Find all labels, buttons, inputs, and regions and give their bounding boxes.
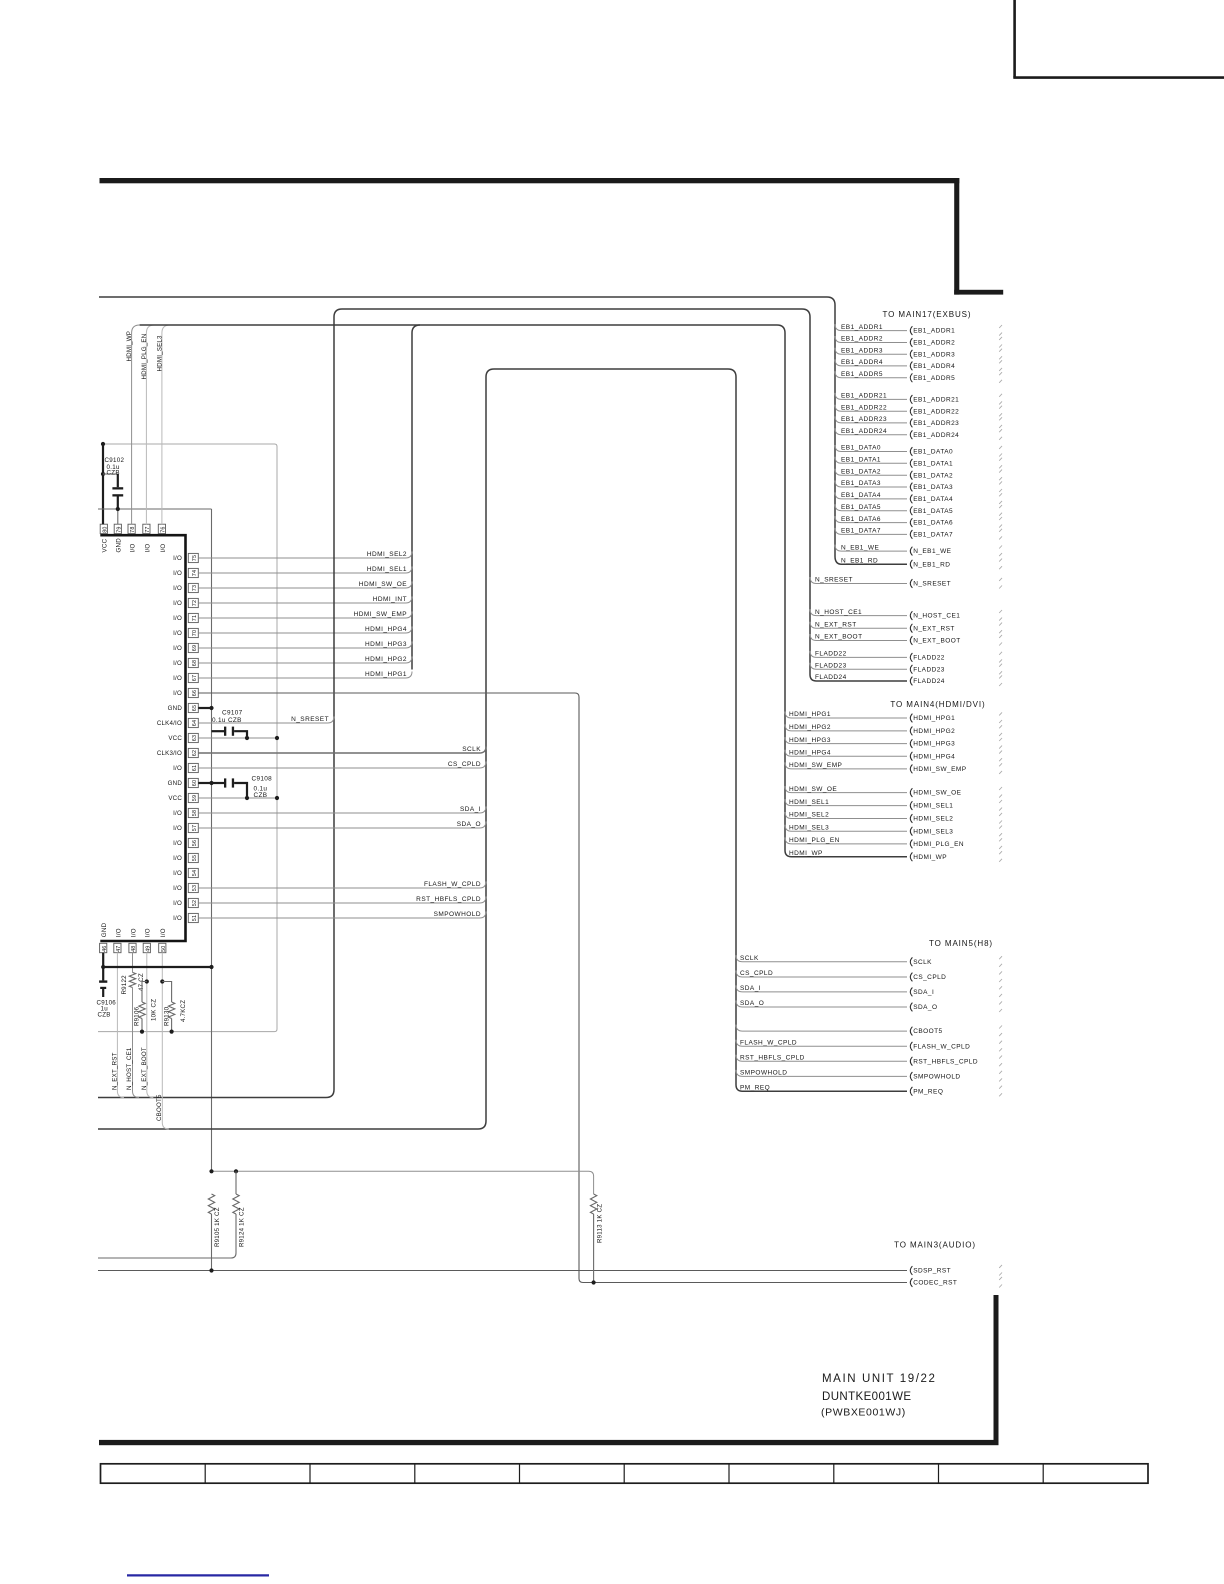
svg-text:65: 65 [192, 705, 198, 711]
svg-text:N_HOST_CE1: N_HOST_CE1 [913, 613, 960, 620]
svg-text:80: 80 [102, 526, 108, 532]
svg-text:R9106: R9106 [134, 1006, 141, 1026]
svg-text:SDA_O: SDA_O [457, 821, 481, 828]
svg-text:CZB: CZB [107, 470, 120, 477]
svg-text:N_SRESET: N_SRESET [291, 716, 329, 723]
svg-text:RST_HBFLS_CPLD: RST_HBFLS_CPLD [416, 896, 481, 903]
svg-text:47: 47 [116, 945, 122, 951]
svg-text:73: 73 [192, 585, 198, 591]
svg-text:RST_HBFLS_CPLD: RST_HBFLS_CPLD [913, 1058, 978, 1065]
svg-text:SCLK: SCLK [462, 746, 481, 753]
svg-text:TO MAIN3(AUDIO): TO MAIN3(AUDIO) [894, 1241, 976, 1250]
svg-text:HDMI_SEL3: HDMI_SEL3 [913, 828, 953, 835]
svg-text:67: 67 [192, 675, 198, 681]
svg-text:EB1_ADDR4: EB1_ADDR4 [841, 359, 883, 366]
svg-text:62: 62 [192, 750, 198, 756]
svg-text:69: 69 [192, 645, 198, 651]
svg-text:CODEC_RST: CODEC_RST [913, 1280, 957, 1287]
svg-text:HDMI_HPG3: HDMI_HPG3 [365, 641, 407, 648]
svg-text:I/O: I/O [160, 543, 167, 552]
svg-text:CBOOT5: CBOOT5 [156, 1094, 163, 1121]
svg-text:I/O: I/O [173, 555, 182, 562]
svg-text:HDMI_HPG2: HDMI_HPG2 [365, 656, 407, 663]
svg-text:HDMI_SEL3: HDMI_SEL3 [156, 335, 163, 372]
svg-text:I/O: I/O [173, 765, 182, 772]
svg-text:I/O: I/O [173, 900, 182, 907]
svg-text:EB1_DATA6: EB1_DATA6 [841, 516, 881, 523]
svg-text:PM_REQ: PM_REQ [740, 1085, 770, 1092]
svg-text:CS_CPLD: CS_CPLD [740, 970, 773, 977]
svg-text:77: 77 [145, 526, 151, 532]
svg-text:EB1_ADDR1: EB1_ADDR1 [841, 324, 883, 331]
svg-text:SMPOWHOLD: SMPOWHOLD [740, 1070, 787, 1077]
svg-text:HDMI_HPG4: HDMI_HPG4 [789, 749, 831, 756]
svg-text:HDMI_WP: HDMI_WP [789, 850, 823, 857]
svg-text:FLADD23: FLADD23 [913, 666, 945, 673]
svg-text:EB1_DATA2: EB1_DATA2 [841, 468, 881, 475]
svg-text:SDA_O: SDA_O [740, 1000, 764, 1007]
svg-text:GND: GND [101, 922, 108, 937]
svg-text:78: 78 [130, 526, 136, 532]
svg-text:59: 59 [192, 795, 198, 801]
svg-text:HDMI_SW_EMP: HDMI_SW_EMP [354, 611, 407, 618]
svg-text:EB1_ADDR23: EB1_ADDR23 [841, 416, 887, 423]
svg-text:I/O: I/O [173, 840, 182, 847]
svg-text:FLADD22: FLADD22 [913, 655, 945, 662]
svg-text:N_EXT_BOOT: N_EXT_BOOT [815, 634, 862, 641]
svg-text:EB1_ADDR2: EB1_ADDR2 [913, 340, 955, 347]
svg-text:R9124 1K CZ: R9124 1K CZ [239, 1207, 246, 1247]
svg-text:HDMI_SEL2: HDMI_SEL2 [789, 812, 829, 819]
svg-text:50: 50 [161, 945, 167, 951]
svg-text:HDMI_SEL3: HDMI_SEL3 [789, 824, 829, 831]
svg-text:I/O: I/O [173, 660, 182, 667]
svg-text:PM_REQ: PM_REQ [913, 1088, 943, 1095]
svg-text:60: 60 [192, 780, 198, 786]
svg-text:N_SRESET: N_SRESET [913, 581, 951, 588]
svg-text:TO MAIN5(H8): TO MAIN5(H8) [929, 939, 993, 948]
svg-text:61: 61 [192, 765, 198, 771]
svg-text:N_EB1_WE: N_EB1_WE [913, 548, 951, 555]
svg-text:C9102: C9102 [105, 457, 125, 464]
svg-text:SDA_O: SDA_O [913, 1004, 937, 1011]
svg-text:CS_CPLD: CS_CPLD [913, 974, 946, 981]
svg-text:CLK3/IO: CLK3/IO [157, 750, 182, 757]
svg-text:N_EXT_RST: N_EXT_RST [815, 621, 857, 628]
svg-text:N_EXT_RST: N_EXT_RST [913, 625, 955, 632]
svg-text:HDMI_SW_OE: HDMI_SW_OE [913, 790, 961, 797]
svg-text:I/O: I/O [173, 585, 182, 592]
svg-text:I/O: I/O [144, 543, 151, 552]
svg-text:HDMI_HPG1: HDMI_HPG1 [913, 715, 955, 722]
svg-text:HDMI_SW_EMP: HDMI_SW_EMP [913, 766, 966, 773]
svg-text:TO MAIN4(HDMI/DVI): TO MAIN4(HDMI/DVI) [890, 700, 985, 709]
svg-text:10K CZ: 10K CZ [151, 999, 158, 1021]
svg-text:63: 63 [192, 735, 198, 741]
svg-text:C9108: C9108 [252, 776, 273, 783]
svg-text:SDA_I: SDA_I [460, 806, 481, 813]
svg-text:FLADD22: FLADD22 [815, 651, 847, 658]
svg-text:EB1_ADDR4: EB1_ADDR4 [913, 363, 955, 370]
svg-text:EB1_ADDR3: EB1_ADDR3 [913, 351, 955, 358]
svg-text:FLADD24: FLADD24 [913, 678, 945, 685]
svg-text:EB1_DATA5: EB1_DATA5 [913, 508, 953, 515]
svg-text:RST_HBFLS_CPLD: RST_HBFLS_CPLD [740, 1054, 805, 1061]
svg-text:DUNTKE001WE: DUNTKE001WE [822, 1391, 911, 1403]
svg-text:I/O: I/O [173, 690, 182, 697]
svg-text:N_EXT_BOOT: N_EXT_BOOT [913, 638, 960, 645]
svg-text:R9130: R9130 [163, 1006, 170, 1026]
svg-text:68: 68 [192, 660, 198, 666]
svg-text:71: 71 [192, 615, 198, 621]
svg-text:EB1_ADDR5: EB1_ADDR5 [841, 371, 883, 378]
svg-text:EB1_ADDR1: EB1_ADDR1 [913, 328, 955, 335]
svg-text:EB1_DATA5: EB1_DATA5 [841, 504, 881, 511]
svg-text:46: 46 [102, 945, 108, 951]
svg-text:66: 66 [192, 690, 198, 696]
svg-text:EB1_DATA4: EB1_DATA4 [841, 492, 881, 499]
svg-text:GND: GND [168, 705, 183, 712]
svg-text:58: 58 [192, 810, 198, 816]
svg-text:FLASH_W_CPLD: FLASH_W_CPLD [913, 1043, 970, 1050]
svg-text:EB1_ADDR21: EB1_ADDR21 [913, 397, 959, 404]
svg-text:I/O: I/O [173, 570, 182, 577]
svg-text:EB1_ADDR22: EB1_ADDR22 [913, 408, 959, 415]
svg-text:I/O: I/O [173, 915, 182, 922]
svg-text:EB1_ADDR24: EB1_ADDR24 [913, 432, 959, 439]
svg-text:MAIN UNIT 19/22: MAIN UNIT 19/22 [822, 1373, 937, 1385]
svg-text:EB1_DATA3: EB1_DATA3 [913, 484, 953, 491]
svg-text:57: 57 [192, 825, 198, 831]
svg-text:TO MAIN17(EXBUS): TO MAIN17(EXBUS) [883, 310, 972, 319]
svg-text:HDMI_SW_OE: HDMI_SW_OE [359, 581, 407, 588]
svg-text:56: 56 [192, 840, 198, 846]
svg-text:EB1_ADDR3: EB1_ADDR3 [841, 348, 883, 355]
svg-text:HDMI_SW_EMP: HDMI_SW_EMP [789, 762, 842, 769]
svg-text:76: 76 [161, 526, 167, 532]
svg-text:N_EXT_BOOT: N_EXT_BOOT [141, 1047, 148, 1090]
svg-text:VCC: VCC [102, 538, 109, 552]
svg-text:I/O: I/O [173, 825, 182, 832]
svg-text:0.1u CZB: 0.1u CZB [212, 717, 242, 724]
svg-text:N_HOST_CE1: N_HOST_CE1 [126, 1047, 133, 1090]
svg-text:R9113 1K CZ: R9113 1K CZ [597, 1204, 604, 1243]
svg-text:FLADD24: FLADD24 [815, 674, 847, 681]
svg-text:EB1_DATA1: EB1_DATA1 [841, 457, 881, 464]
svg-text:I/O: I/O [115, 928, 122, 937]
svg-text:SCLK: SCLK [740, 955, 759, 962]
svg-text:HDMI_HPG2: HDMI_HPG2 [789, 724, 831, 731]
svg-text:EB1_DATA2: EB1_DATA2 [913, 472, 953, 479]
svg-text:I/O: I/O [173, 645, 182, 652]
svg-text:HDMI_PLG_EN: HDMI_PLG_EN [913, 841, 964, 848]
svg-text:SMPOWHOLD: SMPOWHOLD [913, 1074, 960, 1081]
svg-text:51: 51 [192, 915, 198, 921]
svg-text:EB1_ADDR23: EB1_ADDR23 [913, 420, 959, 427]
svg-text:R9122: R9122 [121, 975, 128, 995]
svg-text:72: 72 [192, 600, 198, 606]
svg-text:HDMI_SEL2: HDMI_SEL2 [367, 551, 407, 558]
svg-text:HDMI_WP: HDMI_WP [913, 854, 947, 861]
svg-text:I/O: I/O [173, 615, 182, 622]
svg-text:HDMI_SW_OE: HDMI_SW_OE [789, 786, 837, 793]
svg-text:VCC: VCC [168, 795, 182, 802]
svg-text:EB1_DATA7: EB1_DATA7 [913, 532, 953, 539]
svg-text:HDMI_HPG3: HDMI_HPG3 [913, 741, 955, 748]
svg-text:EB1_ADDR5: EB1_ADDR5 [913, 375, 955, 382]
svg-text:HDMI_PLG_EN: HDMI_PLG_EN [141, 334, 148, 380]
svg-text:N_EB1_WE: N_EB1_WE [841, 544, 879, 551]
svg-text:SCLK: SCLK [913, 959, 932, 966]
svg-text:HDMI_PLG_EN: HDMI_PLG_EN [789, 837, 840, 844]
svg-text:74: 74 [192, 570, 198, 576]
svg-text:HDMI_WP: HDMI_WP [126, 331, 133, 362]
svg-text:VCC: VCC [168, 735, 182, 742]
svg-text:I/O: I/O [130, 928, 137, 937]
svg-text:EB1_ADDR21: EB1_ADDR21 [841, 393, 887, 400]
svg-text:HDMI_HPG3: HDMI_HPG3 [789, 737, 831, 744]
svg-text:HDMI_SEL1: HDMI_SEL1 [367, 566, 407, 573]
svg-text:SDA_I: SDA_I [913, 989, 934, 996]
svg-text:52: 52 [192, 900, 198, 906]
svg-text:HDMI_HPG1: HDMI_HPG1 [789, 711, 831, 718]
svg-text:I/O: I/O [145, 928, 152, 937]
svg-text:75: 75 [192, 555, 198, 561]
svg-text:HDMI_SEL1: HDMI_SEL1 [913, 803, 953, 810]
svg-text:53: 53 [192, 885, 198, 891]
svg-text:FLADD23: FLADD23 [815, 663, 847, 670]
svg-text:N_HOST_CE1: N_HOST_CE1 [815, 609, 862, 616]
svg-text:FLASH_W_CPLD: FLASH_W_CPLD [740, 1040, 797, 1047]
svg-text:47 CZ: 47 CZ [138, 973, 145, 991]
svg-text:I/O: I/O [160, 928, 167, 937]
svg-text:64: 64 [192, 720, 198, 726]
svg-text:4.7KCZ: 4.7KCZ [180, 1000, 187, 1022]
svg-text:SMPOWHOLD: SMPOWHOLD [434, 911, 481, 918]
svg-text:CLK4/IO: CLK4/IO [157, 720, 182, 727]
svg-text:EB1_ADDR2: EB1_ADDR2 [841, 336, 883, 343]
svg-text:EB1_DATA1: EB1_DATA1 [913, 460, 953, 467]
svg-text:EB1_DATA0: EB1_DATA0 [913, 449, 953, 456]
svg-text:70: 70 [192, 630, 198, 636]
svg-text:EB1_DATA6: EB1_DATA6 [913, 520, 953, 527]
svg-text:C9107: C9107 [222, 710, 243, 717]
svg-text:N_EB1_RD: N_EB1_RD [913, 561, 950, 568]
svg-text:EB1_DATA7: EB1_DATA7 [841, 528, 881, 535]
svg-text:N_EXT_RST: N_EXT_RST [112, 1052, 119, 1090]
svg-text:I/O: I/O [173, 630, 182, 637]
svg-text:CZB: CZB [98, 1012, 111, 1019]
svg-text:HDMI_HPG1: HDMI_HPG1 [365, 671, 407, 678]
svg-text:I/O: I/O [130, 543, 137, 552]
svg-text:55: 55 [192, 855, 198, 861]
svg-text:I/O: I/O [173, 600, 182, 607]
svg-text:HDMI_SEL2: HDMI_SEL2 [913, 816, 953, 823]
svg-text:I/O: I/O [173, 675, 182, 682]
svg-text:I/O: I/O [173, 885, 182, 892]
svg-text:EB1_DATA0: EB1_DATA0 [841, 445, 881, 452]
svg-text:I/O: I/O [173, 810, 182, 817]
svg-text:HDMI_HPG4: HDMI_HPG4 [365, 626, 407, 633]
svg-text:EB1_DATA4: EB1_DATA4 [913, 496, 953, 503]
svg-text:HDMI_INT: HDMI_INT [373, 596, 407, 603]
svg-text:FLASH_W_CPLD: FLASH_W_CPLD [424, 881, 481, 888]
svg-text:79: 79 [116, 526, 122, 532]
svg-text:I/O: I/O [173, 855, 182, 862]
svg-text:48: 48 [131, 945, 137, 951]
svg-text:EB1_ADDR24: EB1_ADDR24 [841, 428, 887, 435]
svg-text:N_EB1_RD: N_EB1_RD [841, 557, 878, 564]
svg-text:EB1_ADDR22: EB1_ADDR22 [841, 405, 887, 412]
svg-text:EB1_DATA3: EB1_DATA3 [841, 480, 881, 487]
svg-text:GND: GND [116, 538, 123, 553]
svg-text:N_SRESET: N_SRESET [815, 577, 853, 584]
svg-text:HDMI_HPG2: HDMI_HPG2 [913, 728, 955, 735]
svg-text:49: 49 [145, 945, 151, 951]
svg-text:I/O: I/O [173, 870, 182, 877]
svg-text:CBOOT5: CBOOT5 [913, 1028, 942, 1035]
svg-text:CS_CPLD: CS_CPLD [448, 761, 481, 768]
svg-text:HDMI_HPG4: HDMI_HPG4 [913, 753, 955, 760]
svg-text:SDA_I: SDA_I [740, 985, 761, 992]
svg-text:GND: GND [168, 780, 183, 787]
svg-text:R9105 1K CZ: R9105 1K CZ [214, 1207, 221, 1247]
svg-text:54: 54 [192, 870, 198, 876]
svg-text:(PWBXE001WJ): (PWBXE001WJ) [821, 1407, 906, 1419]
svg-text:HDMI_SEL1: HDMI_SEL1 [789, 799, 829, 806]
svg-text:SDSP_RST: SDSP_RST [913, 1268, 951, 1275]
